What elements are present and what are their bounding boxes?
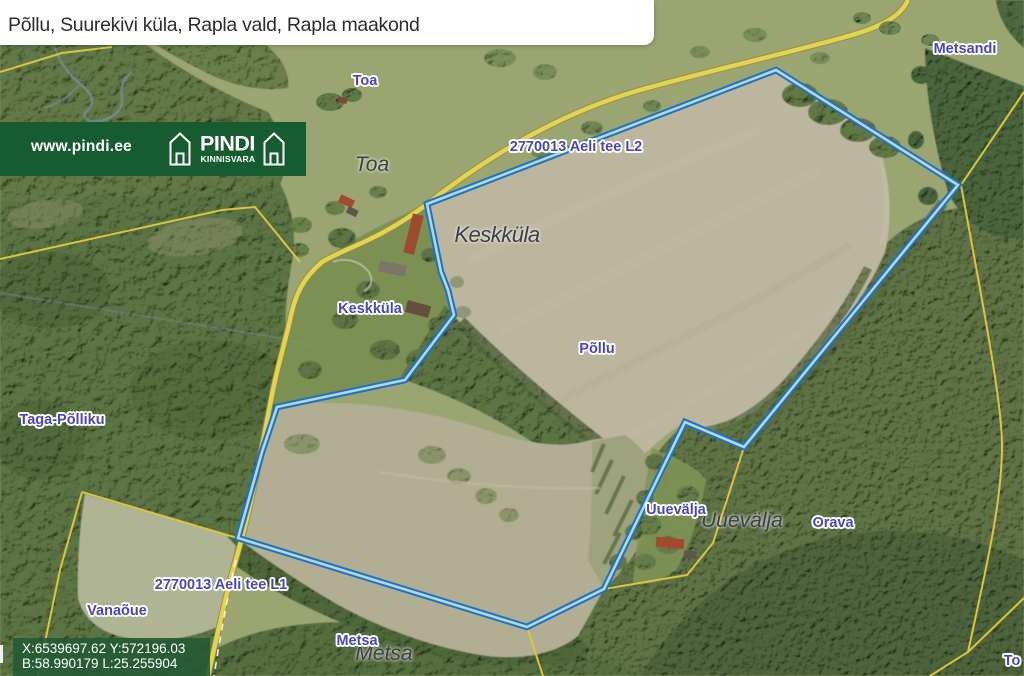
svg-text:KINNISVARA: KINNISVARA	[201, 154, 256, 164]
svg-text:PINDI: PINDI	[200, 132, 255, 156]
